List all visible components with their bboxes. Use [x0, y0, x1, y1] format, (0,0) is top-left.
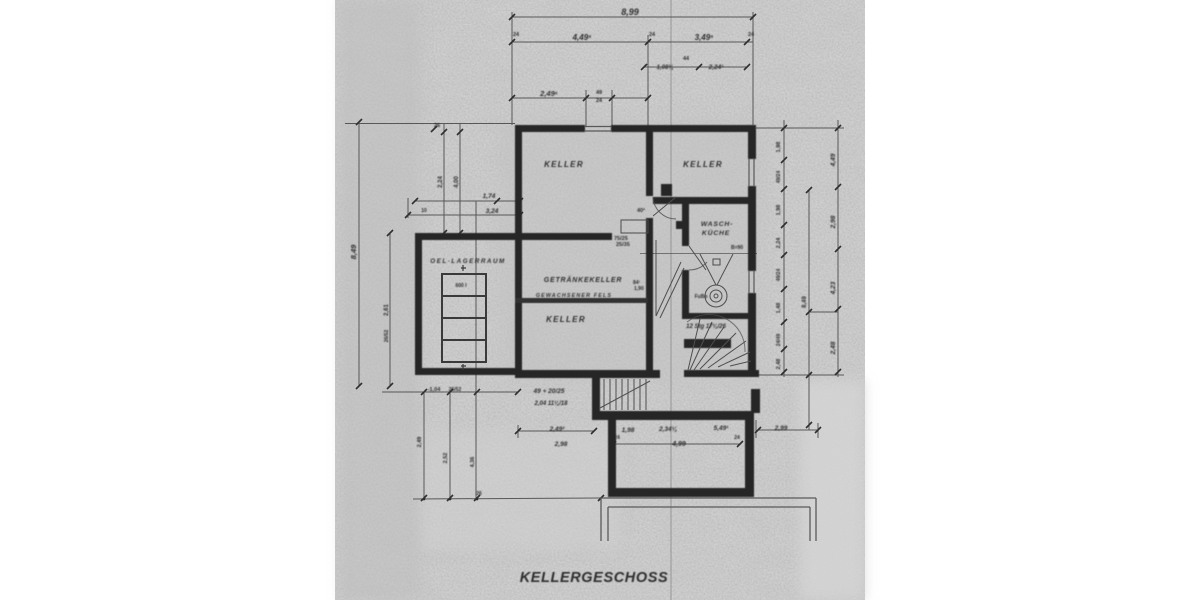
svg-text:2,49: 2,49 — [417, 437, 423, 448]
svg-text:24: 24 — [596, 98, 603, 104]
svg-text:WASCH-: WASCH- — [701, 221, 733, 228]
svg-text:1,98: 1,98 — [776, 142, 782, 153]
svg-text:FuBo: FuBo — [695, 294, 708, 300]
svg-text:4,49⁵: 4,49⁵ — [572, 33, 592, 42]
svg-text:2,34¼: 2,34¼ — [658, 426, 677, 433]
svg-text:2,48: 2,48 — [830, 341, 837, 355]
svg-text:12 Stg 17¼/26: 12 Stg 17¼/26 — [686, 324, 726, 330]
svg-text:8,49: 8,49 — [802, 296, 808, 308]
svg-text:2,24: 2,24 — [438, 176, 444, 188]
svg-text:2,98: 2,98 — [830, 215, 837, 229]
svg-text:3,24: 3,24 — [486, 208, 499, 215]
svg-text:24: 24 — [748, 32, 755, 38]
svg-text:2,98: 2,98 — [554, 441, 568, 448]
svg-text:2,61: 2,61 — [384, 304, 390, 316]
svg-text:24/49: 24/49 — [776, 334, 782, 347]
svg-text:B=90: B=90 — [731, 245, 743, 251]
svg-text:2,24¹: 2,24¹ — [708, 64, 725, 71]
svg-text:26: 26 — [434, 123, 440, 129]
svg-text:3,49⁵: 3,49⁵ — [695, 33, 714, 42]
svg-text:GETRÄNKEKELLER: GETRÄNKEKELLER — [544, 276, 622, 284]
svg-text:600 l: 600 l — [455, 283, 467, 289]
svg-text:1,98: 1,98 — [622, 427, 635, 434]
svg-text:OEL·LAGERRAUM: OEL·LAGERRAUM — [430, 258, 505, 265]
svg-text:1,74: 1,74 — [483, 193, 496, 200]
svg-text:24: 24 — [649, 32, 656, 38]
svg-text:1,08¾: 1,08¾ — [657, 65, 674, 71]
svg-text:5,49¹: 5,49¹ — [714, 425, 730, 432]
svg-text:KELLER: KELLER — [683, 160, 723, 169]
svg-text:25/35: 25/35 — [616, 242, 630, 248]
svg-text:1,90: 1,90 — [634, 286, 644, 292]
svg-text:49/24: 49/24 — [776, 269, 782, 282]
svg-text:24: 24 — [513, 32, 520, 38]
svg-text:2,52: 2,52 — [443, 453, 449, 464]
svg-text:2,24: 2,24 — [776, 237, 782, 249]
svg-text:4,99: 4,99 — [671, 441, 686, 448]
svg-text:-1,04: -1,04 — [428, 387, 441, 393]
svg-text:2,99: 2,99 — [774, 425, 788, 432]
svg-text:1,98: 1,98 — [776, 205, 782, 216]
svg-text:2,04 11¼/18: 2,04 11¼/18 — [534, 401, 569, 407]
svg-text:GEWACHSENER FELS: GEWACHSENER FELS — [536, 293, 612, 299]
svg-text:KELLER: KELLER — [546, 315, 586, 324]
svg-text:2,48: 2,48 — [776, 359, 782, 370]
svg-text:4,49: 4,49 — [830, 153, 837, 167]
svg-text:24: 24 — [614, 435, 620, 441]
svg-text:KELLERGESCHOSS: KELLERGESCHOSS — [520, 570, 669, 586]
svg-text:44: 44 — [683, 56, 690, 62]
svg-text:49/24: 49/24 — [776, 171, 782, 184]
svg-text:10: 10 — [421, 208, 427, 214]
svg-text:4,36: 4,36 — [470, 457, 476, 468]
svg-text:KÜCHE: KÜCHE — [702, 228, 730, 237]
svg-text:2,49²: 2,49² — [549, 426, 566, 433]
svg-text:4,23: 4,23 — [830, 281, 837, 295]
svg-text:2,49⁵: 2,49⁵ — [539, 89, 558, 98]
svg-text:KELLER: KELLER — [544, 160, 584, 169]
svg-text:24: 24 — [734, 435, 740, 441]
svg-text:4,00: 4,00 — [454, 176, 460, 188]
svg-text:26/52: 26/52 — [384, 330, 390, 343]
svg-text:26/52: 26/52 — [449, 387, 462, 393]
svg-text:8,99: 8,99 — [621, 7, 639, 17]
svg-text:8,49: 8,49 — [349, 244, 358, 259]
svg-text:1,48: 1,48 — [776, 303, 782, 314]
svg-text:40²: 40² — [637, 207, 645, 214]
svg-text:49: 49 — [596, 90, 602, 96]
svg-text:49 + 20/25: 49 + 20/25 — [533, 388, 565, 395]
svg-text:26: 26 — [476, 491, 482, 497]
